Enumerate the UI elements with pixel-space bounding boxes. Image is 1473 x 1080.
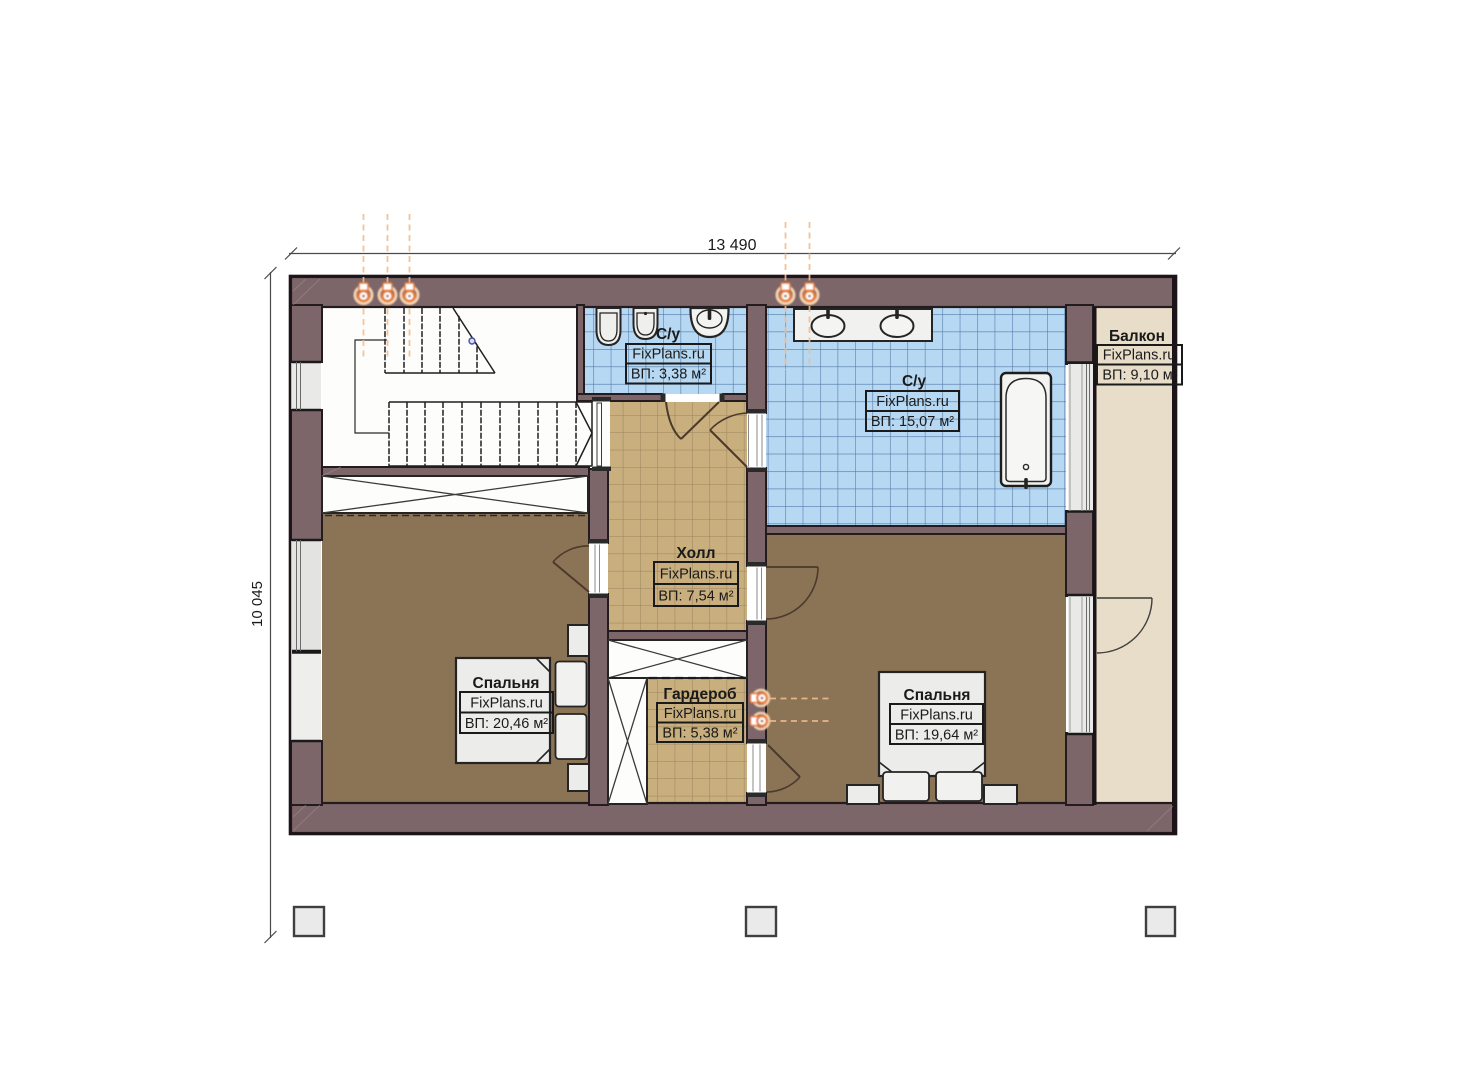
svg-text:Спальня: Спальня xyxy=(904,687,971,704)
svg-text:FixPlans.ru: FixPlans.ru xyxy=(900,708,973,724)
svg-text:ВП: 15,07 м²: ВП: 15,07 м² xyxy=(871,414,954,430)
svg-text:ВП: 5,38 м²: ВП: 5,38 м² xyxy=(662,726,737,742)
svg-text:ВП: 20,46 м²: ВП: 20,46 м² xyxy=(465,716,548,732)
svg-text:10 045: 10 045 xyxy=(249,581,266,627)
svg-text:FixPlans.ru: FixPlans.ru xyxy=(632,347,705,363)
svg-text:Гардероб: Гардероб xyxy=(663,686,736,703)
svg-text:FixPlans.ru: FixPlans.ru xyxy=(660,567,733,583)
svg-text:Спальня: Спальня xyxy=(473,675,540,692)
svg-text:13 490: 13 490 xyxy=(708,237,757,254)
svg-text:Балкон: Балкон xyxy=(1109,328,1165,345)
svg-text:FixPlans.ru: FixPlans.ru xyxy=(1103,348,1176,364)
svg-text:С/у: С/у xyxy=(656,326,681,343)
svg-text:FixPlans.ru: FixPlans.ru xyxy=(876,394,949,410)
svg-text:ВП: 9,10 м²: ВП: 9,10 м² xyxy=(1102,368,1177,384)
svg-text:ВП: 3,38 м²: ВП: 3,38 м² xyxy=(631,367,706,383)
svg-text:FixPlans.ru: FixPlans.ru xyxy=(470,696,543,712)
svg-text:Холл: Холл xyxy=(677,545,716,562)
svg-text:FixPlans.ru: FixPlans.ru xyxy=(664,706,737,722)
svg-text:С/у: С/у xyxy=(902,373,927,390)
svg-text:ВП: 19,64 м²: ВП: 19,64 м² xyxy=(895,728,978,744)
svg-text:ВП: 7,54 м²: ВП: 7,54 м² xyxy=(658,589,733,605)
